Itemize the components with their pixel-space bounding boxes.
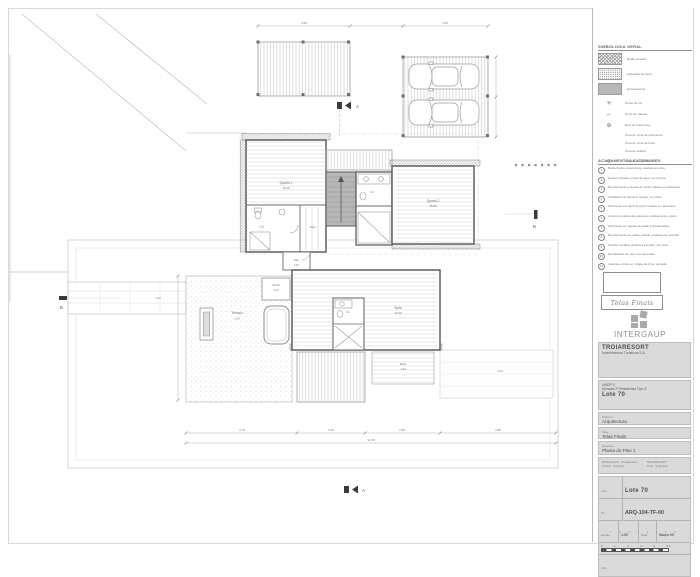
- dim-value: 4.60: [301, 21, 307, 25]
- dim-value: 2.25: [328, 428, 334, 432]
- note-item: 8 Revestimento em pedra natural, acabame…: [598, 234, 692, 241]
- room-area: 22.30: [395, 311, 402, 315]
- room-label: Apoio: [272, 283, 280, 287]
- note-item: 11 Caleiras e rufos em chapa de zinco qu…: [598, 263, 692, 270]
- lot-label: Lote:: [601, 489, 607, 493]
- drawing-block: Desenho: Planta do Piso 1: [598, 441, 691, 455]
- legend-item: ✳ Ponto de luz: [598, 99, 692, 107]
- exterior-finishes-notes: ACABAMENTOS EXTERIORES 1 Betão branco de…: [598, 158, 692, 273]
- svg-text:B: B: [533, 224, 536, 229]
- level-value: 1.24: [273, 288, 279, 292]
- level-value: 1.24: [293, 263, 299, 267]
- client-block: TROIARESORT Investimentos Turísticos S.A…: [598, 342, 691, 378]
- discipline-value: Arquitectura: [602, 419, 687, 424]
- room-label: I.S.: [346, 310, 350, 314]
- entrance-pergola: [257, 41, 351, 97]
- project-lot: Lote 70: [602, 392, 687, 398]
- fence-markers: [515, 164, 556, 166]
- room-label: Suite: [394, 306, 402, 310]
- contact-right2: Tróia · Grândola: [647, 464, 688, 468]
- jacuzzi: [264, 306, 289, 344]
- phase-block: Fase: Telas Finais: [598, 427, 691, 439]
- floor-plan-drawing: 3.70 2.25 2.50 3.85 12.30 4.60 4.25 A A …: [0, 0, 592, 550]
- note-item: 6 Cobertura plana não acessível, acabame…: [598, 215, 692, 222]
- dim-value: 2.50: [399, 428, 405, 432]
- note-item: 5 Pavimento em deck de pinho tratado em …: [598, 205, 692, 212]
- obs-label: Obs.:: [601, 566, 608, 570]
- level-value: 1.24: [155, 296, 161, 300]
- light-point-icon: ✳: [598, 99, 620, 107]
- legend-item: Enrocamento: [598, 83, 692, 95]
- logo-name: INTERGAUP: [593, 330, 687, 339]
- room-area: 15.80: [430, 204, 437, 208]
- contact-left2: Lisboa · Portugal: [602, 464, 643, 468]
- legend-item: Cota de nível do tecto: [598, 140, 692, 145]
- svg-text:A: A: [356, 104, 359, 109]
- fill-hatch-icon: [598, 83, 622, 95]
- room-label: Hall: [294, 258, 299, 262]
- title-block-column: SIMBOLOGIA GERAL Betão armado Alvenaria …: [592, 8, 693, 542]
- contacts-block: INTERGAUP · Arquitectura Lisboa · Portug…: [598, 457, 691, 474]
- upper-building: [241, 134, 481, 253]
- legend-item: Betão armado: [598, 53, 692, 65]
- room-label: I.S.: [260, 225, 265, 229]
- drawing-number: ARQ-104-TF-00: [625, 510, 664, 516]
- note-item: 4 Caixilharia de alumínio lacado, cor ci…: [598, 196, 692, 203]
- project-line2: Moradia 2ª Residência Tipo 3: [602, 387, 687, 391]
- legend-title: SIMBOLOGIA GERAL: [598, 44, 692, 51]
- legend-item: ⌐ Corte de parede: [598, 110, 692, 118]
- sheet-index-strip: 1 2 3 4 5 6 7 8: [598, 530, 691, 534]
- intergaup-logo: INTERGAUP: [593, 311, 687, 339]
- car-2-icon: [409, 98, 479, 127]
- legend-item: Cota de nível do pavimento: [598, 132, 692, 137]
- note-item: 9 Guarda metálica pintada a esmalte, cor…: [598, 244, 692, 251]
- project-block: UNOP 3 Moradia 2ª Residência Tipo 3 Lote…: [598, 380, 691, 410]
- room-area: 16.45: [283, 186, 290, 190]
- svg-text:B: B: [60, 305, 63, 310]
- note-item: 3 Revestimento a réguas de pinho tratado…: [598, 186, 692, 193]
- client-subtitle: Investimentos Turísticos S.A.: [602, 351, 687, 355]
- legend-item: Alvenaria de tijolo: [598, 68, 692, 80]
- room-label: Deck: [400, 362, 407, 366]
- revision-box: [603, 272, 661, 293]
- dim-value: 12.30: [367, 438, 375, 442]
- section-marker-a-top: A: [337, 102, 359, 137]
- note-item: 10 Serralharias em aço inox escovado: [598, 253, 692, 260]
- note-item: 2 Reboco pintado a tinta de água, cor br…: [598, 177, 692, 184]
- pool: [200, 308, 213, 340]
- section-marker-a-bottom: A: [344, 486, 365, 494]
- note-item: 7 Pavimento em lajetas de betão pré-fabr…: [598, 225, 692, 232]
- room-label: I.S.: [370, 190, 374, 194]
- axis-icon: ⊕: [598, 121, 620, 129]
- deck-far-right: [440, 350, 553, 398]
- site-boundary-lines: [10, 14, 207, 302]
- notes-title: ACABAMENTOS EXTERIORES: [598, 158, 692, 165]
- section-marker-b-right: B: [505, 210, 538, 229]
- room-label: Terraço: [232, 311, 243, 315]
- discipline-block: Projecto: Arquitectura: [598, 412, 691, 425]
- room-label: Quarto 1: [280, 181, 293, 185]
- dim-value: 3.85: [495, 428, 501, 432]
- phase-value: Telas Finais: [602, 434, 687, 439]
- concrete-hatch-icon: [598, 53, 622, 65]
- dim-value: 4.25: [442, 21, 448, 25]
- number-label: Nº:: [601, 511, 605, 515]
- dim-value: 3.70: [239, 428, 245, 432]
- brick-hatch-icon: [598, 68, 622, 80]
- deck-centre: [297, 352, 365, 402]
- note-item: 1 Betão branco descofrado, acabamento li…: [598, 167, 692, 174]
- stair-core: [326, 172, 356, 226]
- legend-item: ⊕ Eixo de referência: [598, 121, 692, 129]
- level-value: 1.24: [400, 367, 406, 371]
- legend: SIMBOLOGIA GERAL Betão armado Alvenaria …: [598, 44, 692, 168]
- lower-building: [290, 270, 442, 350]
- lot-value: Lote 70: [625, 488, 648, 494]
- legend-item: Cota de soleira: [598, 149, 692, 154]
- svg-text:A: A: [362, 488, 365, 493]
- terrace: [186, 276, 292, 402]
- room-label: Vest.: [310, 225, 316, 229]
- number-block: Lote: Lote 70 Nº: ARQ-104-TF-00 Escala 1…: [598, 476, 691, 577]
- drawing-value: Planta do Piso 1: [602, 448, 687, 453]
- room-label: Quarto 2: [427, 199, 440, 203]
- level-value: 1.24: [234, 317, 240, 321]
- level-value: 1.24: [497, 369, 503, 373]
- wall-cut-icon: ⌐: [598, 110, 620, 118]
- telas-finais-stamp: Telas Finais: [601, 295, 663, 310]
- car-1-icon: [409, 62, 479, 91]
- logo-squares-icon: [631, 311, 650, 328]
